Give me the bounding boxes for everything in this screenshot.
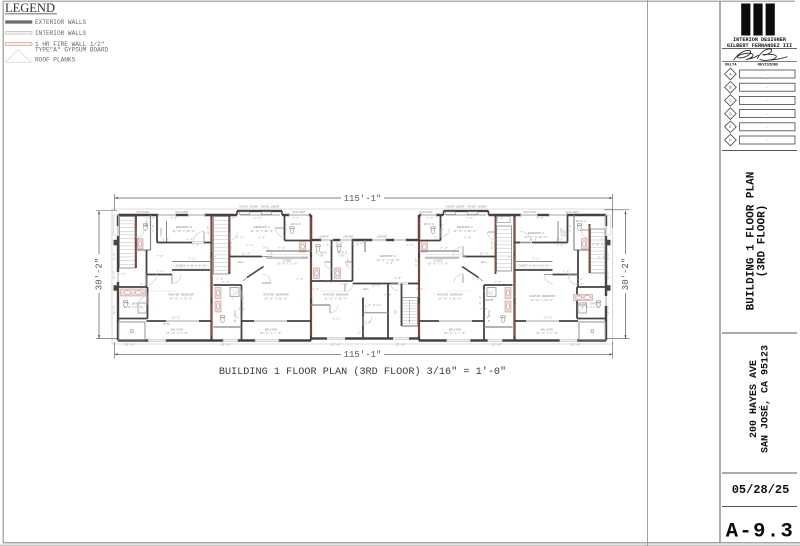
svg-text:5'-6": 5'-6" (365, 321, 373, 324)
svg-text:SKYLIGHT: SKYLIGHT (175, 211, 189, 214)
svg-text:LEGEND: LEGEND (5, 1, 55, 15)
svg-text:5'-6": 5'-6" (593, 244, 601, 247)
svg-text:9'-0": 9'-0" (162, 238, 170, 241)
svg-text:BATH 2: BATH 2 (576, 220, 586, 223)
svg-text:9'-0": 9'-0" (556, 238, 564, 241)
svg-text:MASTER BEDROOM: MASTER BEDROOM (168, 294, 193, 297)
svg-text:A-9.3: A-9.3 (726, 521, 795, 544)
svg-text:5'-6": 5'-6" (171, 217, 179, 220)
svg-text:HALL: HALL (481, 261, 488, 264)
svg-text:8'-0": 8'-0" (188, 258, 196, 261)
svg-text:115'-1": 115'-1" (344, 350, 382, 360)
svg-text:5'-0": 5'-0" (356, 242, 364, 245)
svg-text:5'-6": 5'-6" (417, 288, 425, 291)
svg-text:5'-6": 5'-6" (297, 278, 305, 281)
svg-text:SKYLIGHT: SKYLIGHT (523, 211, 537, 214)
svg-text:27'-0": 27'-0" (492, 342, 502, 346)
svg-text:4'-6": 4'-6" (530, 238, 538, 241)
svg-text:6'-0": 6'-0" (434, 237, 442, 240)
svg-text:BEDROOM C: BEDROOM C (457, 226, 473, 229)
svg-text:SKYLIGHT: SKYLIGHT (419, 211, 433, 214)
svg-text:5'-6": 5'-6" (210, 256, 218, 259)
svg-text:SAN JOSÉ, CA 95123: SAN JOSÉ, CA 95123 (758, 345, 772, 453)
svg-text:7'-0": 7'-0" (384, 294, 392, 297)
svg-text:5'-6": 5'-6" (467, 217, 475, 220)
svg-text:6'-0": 6'-0" (236, 237, 244, 240)
svg-text:200 HAYES AVE: 200 HAYES AVE (749, 360, 760, 438)
svg-text:11'-0" X 14'-0": 11'-0" X 14'-0" (324, 296, 348, 300)
svg-text:10'-0" X 2'-0": 10'-0" X 2'-0" (277, 263, 298, 266)
svg-text:6'-8": 6'-8" (386, 262, 394, 265)
svg-text:DELTA: DELTA (725, 64, 737, 68)
svg-text:13'-0" X 16'-0": 13'-0" X 16'-0" (438, 296, 462, 300)
svg-text:8'-6": 8'-6" (494, 281, 502, 284)
svg-text:7'-6": 7'-6" (156, 271, 164, 274)
svg-text:27'-0": 27'-0" (125, 342, 135, 346)
svg-text:12'-4": 12'-4" (242, 252, 251, 255)
svg-text:8'-0": 8'-0" (532, 258, 540, 261)
svg-text:INTERIOR WALLS: INTERIOR WALLS (35, 30, 87, 37)
svg-text:12'-6": 12'-6" (113, 270, 116, 279)
svg-text:6'-0": 6'-0" (258, 237, 266, 240)
svg-text:14'-0" X 20'-0": 14'-0" X 20'-0" (169, 296, 193, 300)
svg-text:6'-4": 6'-4" (569, 224, 572, 232)
svg-text:MASTER BEDROOM: MASTER BEDROOM (263, 294, 288, 297)
svg-text:9'-4": 9'-4" (140, 283, 148, 286)
svg-text:7'-2": 7'-2" (278, 247, 286, 250)
svg-text:-: - (766, 139, 768, 143)
svg-text:14'-8": 14'-8" (372, 284, 381, 287)
svg-text:27'-0": 27'-0" (396, 342, 406, 346)
svg-text:30'-2": 30'-2" (95, 258, 105, 290)
svg-text:BUILDING 1 FLOOR PLAN (3RD FLO: BUILDING 1 FLOOR PLAN (3RD FLOOR) 3/16" … (219, 366, 506, 378)
svg-text:8'-2": 8'-2" (285, 222, 288, 230)
svg-text:BATH D: BATH D (424, 223, 434, 226)
svg-text:10'-0" X 2'-0": 10'-0" X 2'-0" (428, 263, 449, 266)
svg-text:24X30S LOUVER: 24X30S LOUVER (467, 205, 486, 208)
svg-text:5'-0": 5'-0" (394, 277, 402, 280)
svg-text:(3RD FLOOR): (3RD FLOOR) (757, 205, 769, 278)
svg-text:10'-6": 10'-6" (207, 225, 210, 234)
svg-text:LOUVER: LOUVER (343, 235, 353, 238)
svg-text:5'-6": 5'-6" (407, 244, 415, 247)
svg-text:5'-6": 5'-6" (143, 293, 151, 296)
svg-text:5'-6": 5'-6" (247, 244, 255, 247)
svg-text:12'-0": 12'-0" (230, 240, 233, 249)
svg-text:13'-0" X 16'-0": 13'-0" X 16'-0" (264, 296, 288, 300)
svg-text:BEDROOM E: BEDROOM E (528, 232, 544, 235)
svg-text:5'-4": 5'-4" (332, 318, 340, 321)
svg-text:27'-0": 27'-0" (221, 342, 231, 346)
svg-text:11'-2": 11'-2" (601, 237, 604, 246)
svg-text:EXTERIOR WALLS: EXTERIOR WALLS (35, 19, 87, 26)
svg-text:11'-2": 11'-2" (137, 237, 140, 246)
svg-text:8'-2": 8'-2" (441, 222, 444, 230)
svg-text:LOUVER: LOUVER (318, 235, 328, 238)
svg-text:DN: DN (395, 310, 398, 314)
svg-text:24X30S LOUVER: 24X30S LOUVER (446, 205, 465, 208)
svg-text:4'-6": 4'-6" (186, 238, 194, 241)
svg-text:5'X8': 5'X8' (339, 255, 346, 258)
svg-text:7'-2": 7'-2" (440, 247, 448, 250)
svg-text:SKYLIGHT: SKYLIGHT (292, 211, 306, 214)
svg-text:CLOSET: CLOSET (160, 227, 163, 237)
svg-text:SKYLIGHT: SKYLIGHT (565, 211, 579, 214)
svg-text:10'-2": 10'-2" (113, 305, 116, 314)
svg-text:6'-0": 6'-0" (236, 317, 244, 320)
svg-text:-: - (766, 73, 768, 77)
svg-text:13'-0" X 10'-6": 13'-0" X 10'-6" (250, 229, 274, 233)
svg-text:5'-6": 5'-6" (481, 308, 489, 311)
svg-text:11'-4": 11'-4" (479, 295, 482, 304)
svg-text:10'-2": 10'-2" (607, 305, 610, 314)
svg-text:8'-0": 8'-0" (358, 332, 366, 335)
svg-text:9'-0" X 8'-0": 9'-0" X 8'-0" (582, 306, 601, 309)
svg-text:5'-6": 5'-6" (255, 217, 263, 220)
svg-text:9'-0": 9'-0" (415, 258, 418, 266)
svg-text:SKYLIGHT: SKYLIGHT (136, 211, 150, 214)
svg-text:8'-0": 8'-0" (113, 252, 116, 260)
svg-text:MASTER BEDROOM: MASTER BEDROOM (323, 294, 348, 297)
svg-text:HALL: HALL (238, 261, 245, 264)
svg-text:HALL: HALL (363, 288, 370, 291)
svg-text:-: - (766, 100, 768, 104)
svg-text:F: F (729, 139, 731, 143)
svg-text:12'-4": 12'-4" (480, 252, 489, 255)
svg-text:24X30S LOUVER: 24X30S LOUVER (261, 205, 280, 208)
svg-text:9'-4": 9'-4" (576, 283, 584, 286)
svg-text:5'-6": 5'-6" (193, 244, 201, 247)
svg-text:115'-1": 115'-1" (344, 194, 382, 204)
svg-text:5'-6": 5'-6" (149, 217, 157, 220)
svg-text:10'TD: 10'TD (162, 323, 170, 326)
svg-text:REVISIONS: REVISIONS (758, 64, 779, 68)
svg-text:12'-0": 12'-0" (491, 240, 494, 249)
svg-text:14'-0" X 20'-0": 14'-0" X 20'-0" (530, 298, 554, 302)
svg-text:LOUVER: LOUVER (377, 235, 387, 238)
svg-text:14'-0" X 10'-6": 14'-0" X 10'-6" (172, 229, 196, 233)
svg-text:5'-6": 5'-6" (293, 217, 301, 220)
svg-text:24'-0" X 7'-0": 24'-0" X 7'-0" (260, 331, 282, 335)
svg-text:LINEN: LINEN (564, 230, 567, 238)
svg-text:7'-6": 7'-6" (562, 271, 570, 274)
svg-text:5'-6": 5'-6" (427, 217, 435, 220)
svg-text:24'-0" X 7'-0": 24'-0" X 7'-0" (444, 331, 466, 335)
svg-text:24X30S LOUVER: 24X30S LOUVER (239, 205, 258, 208)
svg-text:5'-6": 5'-6" (327, 244, 335, 247)
svg-text:5' W.I.C.: 5' W.I.C. (368, 303, 382, 307)
svg-text:8'-0": 8'-0" (607, 252, 610, 260)
svg-text:-: - (766, 113, 768, 117)
svg-text:5'-6": 5'-6" (239, 308, 247, 311)
svg-text:14'-2": 14'-2" (312, 295, 315, 304)
svg-text:5'-6": 5'-6" (537, 217, 545, 220)
svg-text:7'-6": 7'-6" (156, 255, 164, 258)
svg-text:5'-6": 5'-6" (473, 278, 481, 281)
svg-text:6'-4": 6'-4" (152, 224, 155, 232)
svg-text:11'-4": 11'-4" (242, 295, 245, 304)
svg-text:ROOF PLANKS: ROOF PLANKS (35, 56, 76, 63)
svg-text:-: - (766, 86, 768, 90)
svg-text:BEDROOM D: BEDROOM D (380, 255, 396, 258)
svg-text:E: E (729, 126, 731, 130)
svg-text:BEDROOM E: BEDROOM E (176, 226, 192, 229)
svg-text:13'-0" X 10'-6": 13'-0" X 10'-6" (453, 229, 477, 233)
svg-text:5'-6": 5'-6" (599, 256, 607, 259)
svg-text:MASTER BEDROOM: MASTER BEDROOM (437, 294, 462, 297)
svg-text:MASTER BEDROOM: MASTER BEDROOM (529, 295, 554, 298)
svg-text:D: D (729, 113, 731, 117)
svg-text:-: - (766, 126, 768, 130)
svg-text:27'-0" X 7'-0": 27'-0" X 7'-0" (536, 331, 558, 335)
svg-text:5'-6": 5'-6" (509, 256, 517, 259)
svg-text:BATH D: BATH D (291, 223, 301, 226)
svg-text:5'-6": 5'-6" (557, 244, 565, 247)
svg-text:5'X8': 5'X8' (318, 255, 325, 258)
svg-text:5'-6": 5'-6" (119, 273, 127, 276)
svg-text:C: C (729, 100, 731, 104)
svg-text:BEDROOM C: BEDROOM C (254, 226, 270, 229)
svg-text:27'-0" X 7'-0": 27'-0" X 7'-0" (166, 331, 188, 335)
svg-text:5'-6": 5'-6" (229, 217, 237, 220)
svg-text:27'-0": 27'-0" (331, 342, 341, 346)
svg-text:5'-6": 5'-6" (497, 217, 505, 220)
svg-text:12'-6": 12'-6" (607, 270, 610, 279)
svg-text:5'-6": 5'-6" (313, 288, 321, 291)
svg-text:9'-2": 9'-2" (326, 281, 334, 284)
svg-text:6'-0": 6'-0" (482, 317, 490, 320)
svg-text:27'-0": 27'-0" (571, 342, 581, 346)
svg-text:30'-2": 30'-2" (621, 258, 631, 290)
svg-text:05/28/25: 05/28/25 (732, 483, 790, 497)
svg-text:5'-0": 5'-0" (336, 242, 344, 245)
svg-text:9'-0" X 8'-0": 9'-0" X 8'-0" (124, 306, 143, 309)
svg-text:TYPE"A" GYPSUM BOARD: TYPE"A" GYPSUM BOARD (35, 46, 108, 53)
svg-text:5'-6": 5'-6" (577, 278, 585, 281)
svg-text:14'-0": 14'-0" (544, 317, 553, 320)
svg-text:14'-2": 14'-2" (515, 295, 518, 304)
svg-text:6'-6": 6'-6" (365, 304, 368, 312)
svg-text:8'-6": 8'-6" (222, 281, 230, 284)
svg-text:14'-0": 14'-0" (172, 317, 181, 320)
svg-text:6'-0": 6'-0" (464, 237, 472, 240)
svg-text:CLOSET: CLOSET (561, 227, 564, 237)
